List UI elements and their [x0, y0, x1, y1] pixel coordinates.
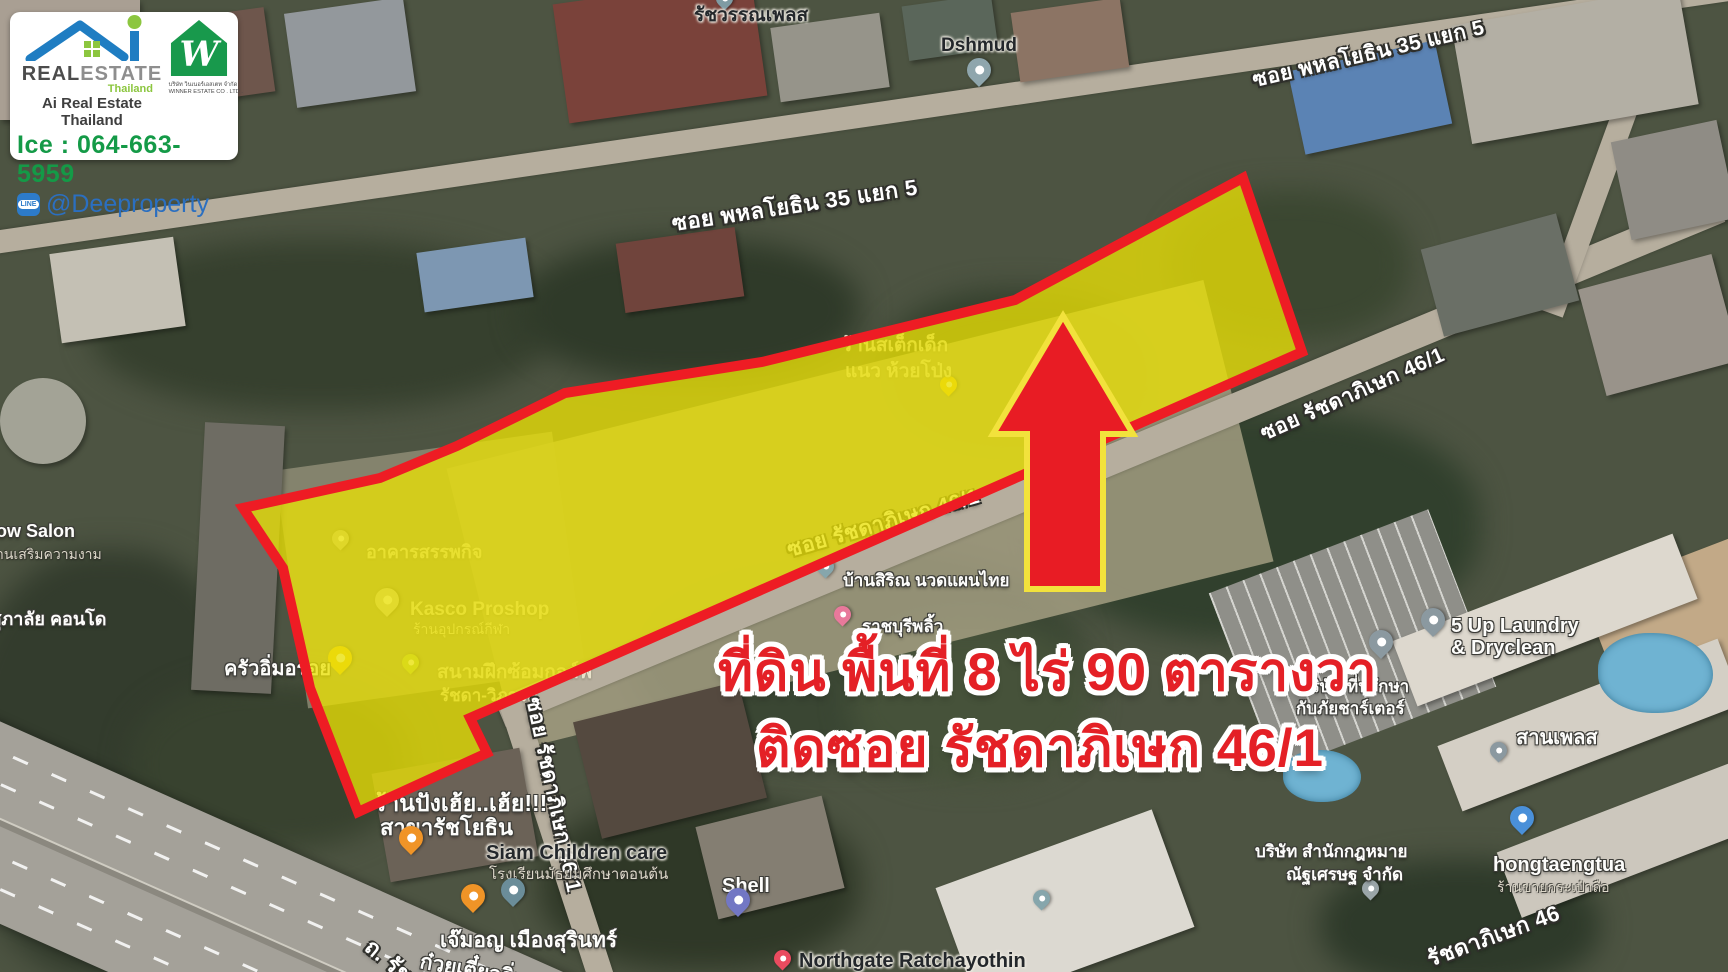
promo-map-image: ร้านสเต็กเด็ก แนว ห้วยโป่ง อาคารสรรพกิจ … — [0, 0, 1728, 972]
caption-area-size: ที่ดิน พื้นที่ 8 ไร่ 90 ตารางวา — [718, 630, 1378, 714]
ai-realestate-logo: REALESTATE Thailand Ai Real Estate Thail… — [17, 15, 167, 129]
arrow-overlay — [0, 0, 1728, 972]
phone-number: Ice : 064-663-5959 — [17, 131, 231, 189]
caption-soi: ติดซอย รัชดาภิเษก 46/1 — [756, 706, 1324, 790]
line-icon: LINE — [17, 193, 40, 216]
agency-logo-card: REALESTATE Thailand Ai Real Estate Thail… — [10, 12, 238, 160]
winner-thai-name: บริษัท วินเนอร์เอสเตท จำกัด — [169, 82, 230, 89]
house-roof-icon — [22, 15, 162, 61]
agency-name: Ai Real Estate Thailand — [17, 95, 167, 129]
winner-estate-logo: W บริษัท วินเนอร์เอสเตท จำกัด WINNER EST… — [167, 15, 231, 96]
winner-en-name: WINNER ESTATE CO . LTD . — [169, 89, 230, 96]
line-id: @Deeproperty — [46, 190, 209, 219]
winner-house-icon: W — [170, 19, 228, 77]
line-contact: LINE @Deeproperty — [17, 190, 231, 219]
red-up-arrow — [993, 316, 1133, 589]
svg-text:W: W — [179, 33, 221, 74]
